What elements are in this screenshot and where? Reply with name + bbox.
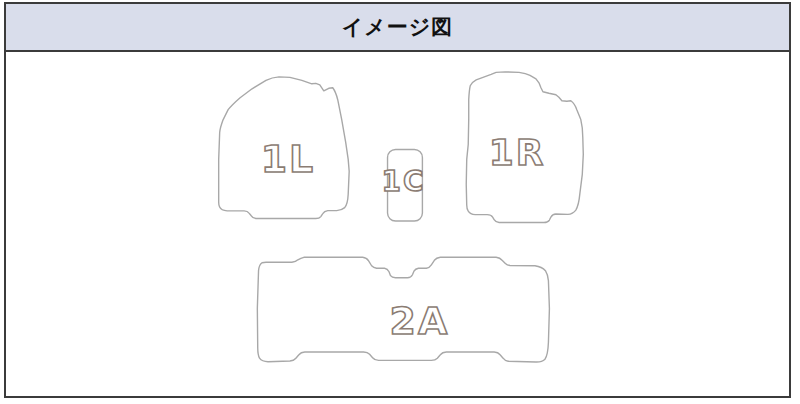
mat-label-front-center: 1C bbox=[382, 165, 426, 198]
diagram-body: 1L 1C 1R 2A bbox=[6, 52, 789, 396]
diagram-header: イメージ図 bbox=[6, 4, 789, 52]
image-diagram-page: イメージ図 1L 1C 1R 2A bbox=[0, 0, 800, 404]
mat-label-front-right: 1R bbox=[489, 132, 546, 173]
mat-label-front-left: 1L bbox=[261, 137, 315, 181]
image-diagram-panel: イメージ図 1L 1C 1R 2A bbox=[4, 2, 791, 398]
diagram-title: イメージ図 bbox=[342, 13, 453, 41]
mat-label-second-row: 2A bbox=[390, 299, 450, 343]
floor-mat-diagram: 1L 1C 1R 2A bbox=[6, 52, 789, 396]
